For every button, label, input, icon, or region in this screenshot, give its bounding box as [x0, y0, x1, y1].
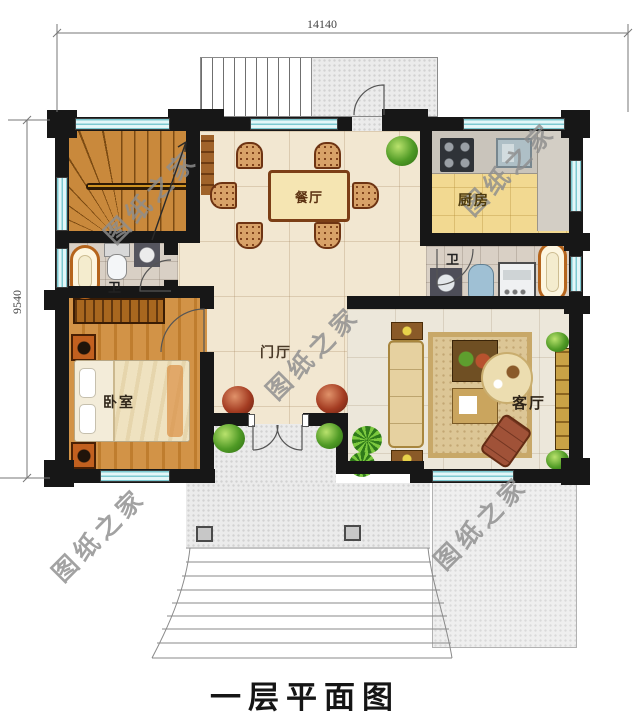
plant — [213, 424, 245, 453]
window — [100, 470, 170, 482]
wall — [347, 296, 569, 309]
stove-icon — [440, 138, 474, 172]
dining-table: 餐厅 — [268, 170, 350, 222]
vanity-icon — [430, 268, 462, 298]
dining-chair — [236, 222, 263, 249]
dining-room-label: 餐厅 — [295, 187, 323, 206]
living-room-label: 客厅 — [512, 392, 546, 413]
dining-chair — [236, 142, 263, 169]
wall-pilaster — [561, 110, 590, 138]
front-porch — [186, 483, 430, 547]
porch-column-right — [344, 525, 361, 541]
back-door-opening — [352, 117, 382, 131]
bath-left-label: 卫 — [108, 277, 123, 296]
back-stairs — [200, 57, 312, 117]
watermark: 图纸之家 — [43, 479, 153, 589]
foyer-label: 门厅 — [260, 342, 292, 362]
plant — [316, 423, 343, 449]
pillow — [79, 404, 96, 434]
door-jamb — [302, 414, 309, 427]
back-landing — [312, 57, 438, 117]
wall — [200, 352, 214, 483]
bath-right-label: 卫 — [446, 249, 461, 268]
dining-chair — [352, 182, 379, 209]
wall — [336, 461, 424, 474]
kitchen-label: 厨房 — [458, 190, 490, 210]
bathtub-icon — [538, 242, 567, 302]
dining-chair — [314, 142, 341, 169]
bedroom-label: 卧室 — [103, 392, 135, 412]
plant — [546, 332, 569, 352]
toilet-icon — [468, 264, 494, 300]
wall — [164, 243, 178, 255]
dimension-height-text: 9540 — [10, 290, 24, 314]
window — [75, 118, 170, 130]
bed-throw — [167, 365, 183, 437]
page-title: 一层平面图 — [0, 672, 610, 717]
dining-chair — [314, 222, 341, 249]
plant — [352, 426, 382, 454]
dimension-width-text: 14140 — [307, 17, 337, 31]
wall — [420, 233, 569, 246]
washing-machine-icon — [498, 262, 536, 298]
nightstand-icon — [71, 334, 96, 361]
door-jamb — [248, 414, 255, 427]
sofa-side-table — [391, 322, 423, 340]
wall-pilaster — [561, 458, 590, 485]
dining-chair — [210, 182, 237, 209]
wall-pilaster — [44, 460, 74, 487]
sofa — [388, 340, 424, 448]
pillow — [79, 368, 96, 398]
plant — [222, 386, 254, 416]
wall — [200, 286, 214, 309]
dimension-left — [0, 116, 50, 482]
floor-plan-canvas: 餐厅 — [0, 0, 640, 726]
front-steps — [152, 548, 452, 658]
window — [570, 256, 582, 292]
wall — [55, 286, 214, 298]
wall — [420, 117, 432, 246]
plant — [386, 136, 418, 166]
window — [56, 177, 68, 231]
plant — [316, 384, 348, 414]
window — [570, 160, 582, 212]
window — [250, 118, 338, 130]
nightstand-icon — [71, 442, 96, 469]
wall-pilaster — [47, 110, 77, 138]
wardrobe — [73, 298, 165, 324]
porch-column-left — [196, 526, 213, 542]
bath-sink-icon — [134, 243, 160, 267]
window — [56, 248, 68, 288]
